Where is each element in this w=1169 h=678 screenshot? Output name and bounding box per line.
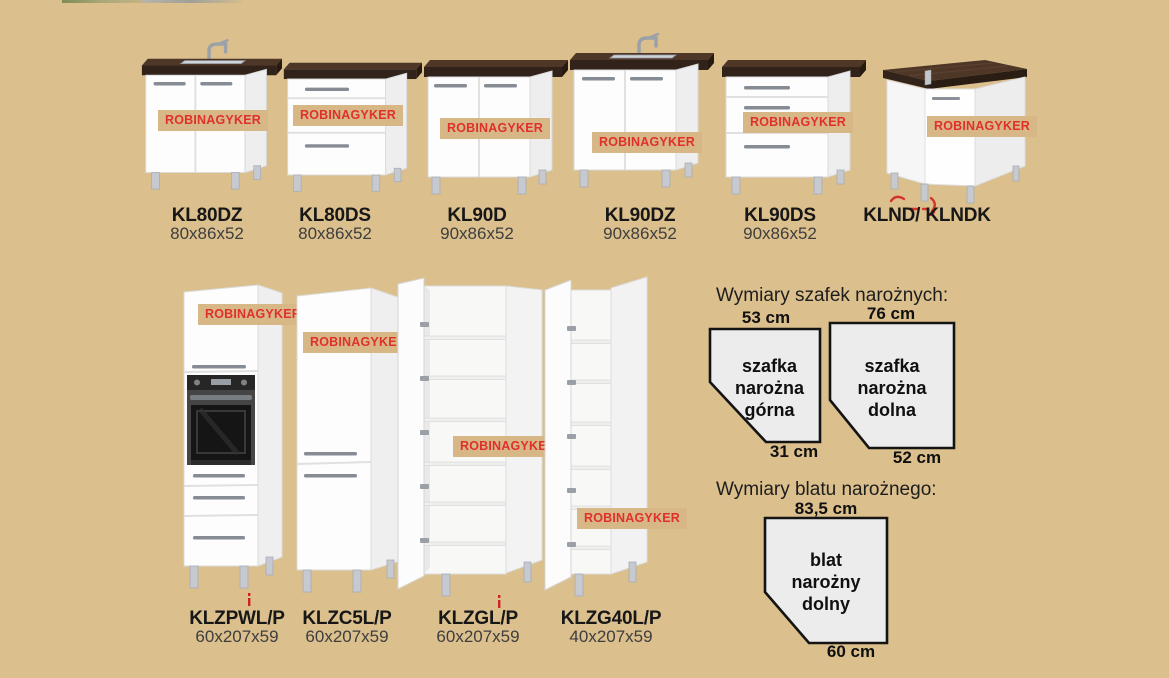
oven-handle bbox=[190, 395, 252, 400]
erased-mark-artifact bbox=[496, 595, 502, 609]
cabinet-body bbox=[574, 64, 698, 170]
cabinet-body bbox=[297, 288, 403, 570]
drawer-handle bbox=[193, 536, 245, 540]
product-name: KLND/ KLNDK bbox=[847, 206, 1007, 226]
watermark-label: ROBINAGYKER bbox=[198, 304, 308, 325]
product-klzg40l-p: ROBINAGYKER KLZG40L/P 40x207x59 bbox=[543, 274, 703, 648]
product-klzpwl-p: ROBINAGYKER KLZPWL/P 60x207x59 bbox=[180, 282, 310, 648]
cabinet-interior bbox=[571, 277, 647, 574]
worktop-bottom-dimension: 60 cm bbox=[827, 642, 875, 662]
product-name: KL90DZ bbox=[560, 206, 720, 226]
product-dimensions: 40x207x59 bbox=[531, 628, 691, 646]
product-dimensions: 90x86x52 bbox=[700, 225, 860, 243]
drawer-handle bbox=[744, 145, 790, 149]
door-handle bbox=[192, 365, 246, 369]
photo-edge-artifact bbox=[62, 0, 142, 3]
door-handle bbox=[484, 84, 517, 88]
drawer-handle bbox=[305, 88, 349, 91]
corner-worktop-label: blat narożny dolny bbox=[770, 549, 882, 615]
narrow-open-pantry-cabinet-image bbox=[543, 274, 653, 604]
product-dimensions: 90x86x52 bbox=[560, 225, 720, 243]
product-name: KL90DS bbox=[700, 206, 860, 226]
right-side-panel bbox=[506, 286, 542, 573]
product-kl90dz: ROBINAGYKER KL90DZ 90x86x52 bbox=[566, 30, 716, 246]
erased-mark-artifact bbox=[246, 593, 252, 607]
watermark-label: ROBINAGYKER bbox=[927, 116, 1037, 137]
door-handle bbox=[304, 452, 357, 456]
product-kl90ds: ROBINAGYKER KL90DS 90x86x52 bbox=[718, 58, 868, 246]
upper-corner-top-dimension: 53 cm bbox=[742, 308, 790, 328]
door-handle bbox=[154, 82, 186, 85]
built-in-oven bbox=[187, 375, 255, 465]
upper-corner-cabinet-label: szafka narożna górna bbox=[722, 355, 817, 421]
drawer-handle bbox=[193, 474, 245, 478]
product-klzgl-p: ROBINAGYKER KLZGL/P 60x207x59 bbox=[396, 276, 556, 648]
corner-worktop-dimensions-title: Wymiary blatu narożnego: bbox=[716, 479, 937, 501]
photo-edge-artifact bbox=[142, 0, 242, 3]
drawer-handle bbox=[744, 86, 790, 90]
watermark-label: ROBINAGYKER bbox=[743, 112, 853, 133]
door-handle bbox=[630, 77, 663, 81]
product-name: KLZG40L/P bbox=[531, 609, 691, 629]
product-dimensions: 90x86x52 bbox=[397, 225, 557, 243]
door-handle bbox=[434, 84, 467, 88]
counter-bracket bbox=[925, 70, 931, 85]
drawer-handle bbox=[193, 496, 245, 500]
door-handle bbox=[932, 97, 960, 100]
watermark-label: ROBINAGYKER bbox=[577, 508, 687, 529]
right-side-panel bbox=[611, 277, 647, 574]
watermark-label: ROBINAGYKER bbox=[158, 110, 268, 131]
product-name: KL80DS bbox=[255, 206, 415, 226]
door-handle bbox=[582, 77, 615, 81]
cabinet-interior bbox=[424, 286, 542, 574]
watermark-label: ROBINAGYKER bbox=[293, 105, 403, 126]
catalog-page: ROBINAGYKER KL80DZ 80x86x52 bbox=[0, 0, 1169, 678]
product-name: KL90D bbox=[397, 206, 557, 226]
product-dimensions: 80x86x52 bbox=[255, 225, 415, 243]
drawer-handle bbox=[744, 106, 790, 110]
oven-tall-cabinet-image bbox=[180, 282, 292, 594]
sink-basin bbox=[181, 61, 245, 64]
product-klnd-klndk: ROBINAGYKER KLND/ KLNDK bbox=[875, 56, 1035, 246]
upper-corner-bottom-dimension: 31 cm bbox=[770, 442, 818, 462]
product-kl90d: ROBINAGYKER KL90D 90x86x52 bbox=[420, 58, 570, 246]
lower-corner-cabinet-label: szafka narożna dolna bbox=[838, 355, 946, 421]
drawer-handle bbox=[305, 144, 349, 147]
tall-cabinet-image bbox=[293, 284, 411, 596]
drawer-cabinet-image bbox=[280, 58, 422, 196]
door-handle bbox=[200, 82, 232, 85]
sink-basin bbox=[610, 55, 676, 58]
watermark-label: ROBINAGYKER bbox=[440, 118, 550, 139]
watermark-label: ROBINAGYKER bbox=[592, 132, 702, 153]
sink-cabinet-image bbox=[566, 30, 714, 202]
door-handle bbox=[304, 474, 357, 478]
lower-corner-bottom-dimension: 52 cm bbox=[893, 448, 941, 468]
